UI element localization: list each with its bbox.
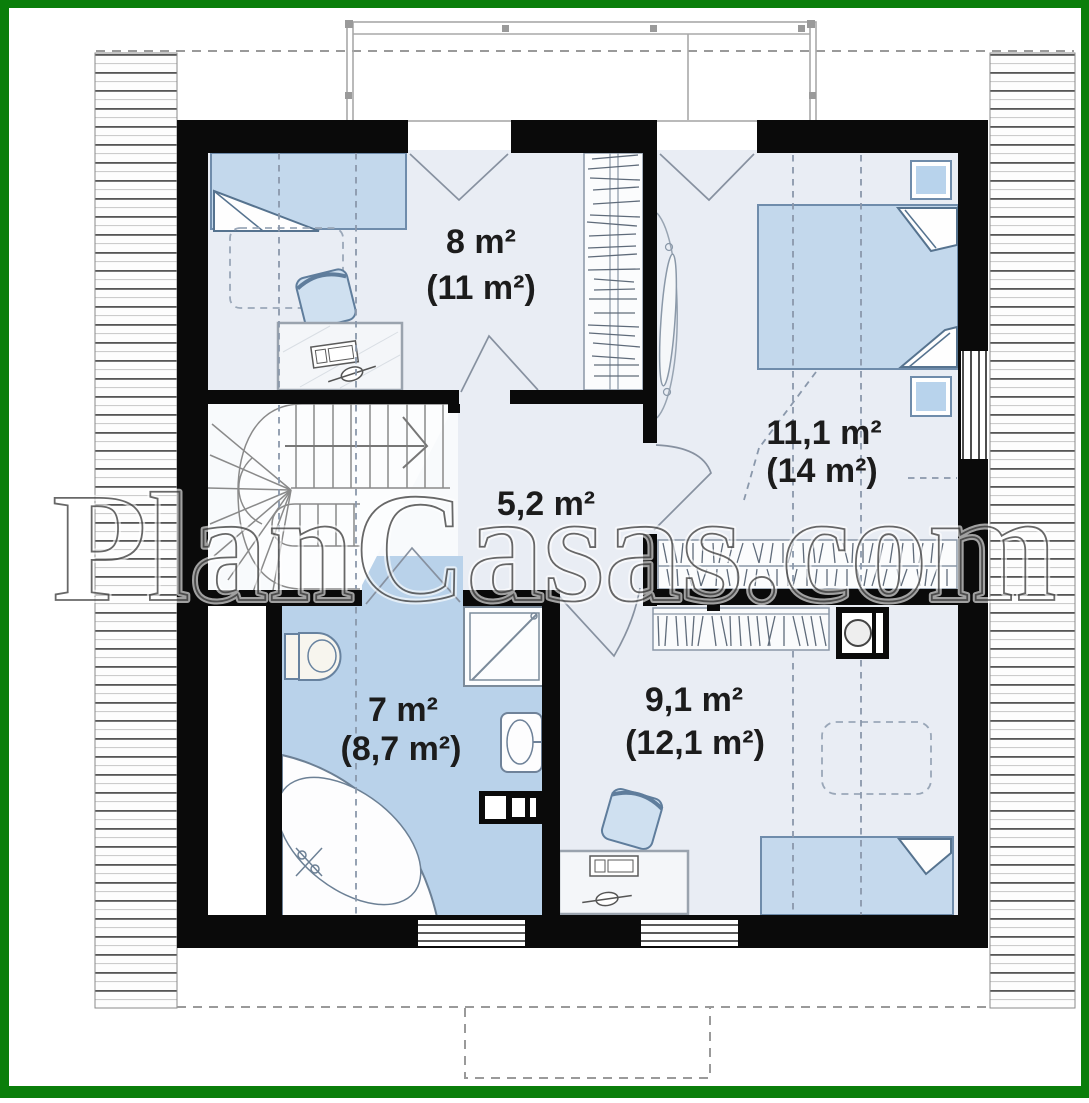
svg-text:(8,7 m²): (8,7 m²) bbox=[341, 730, 462, 768]
svg-text:8 m²: 8 m² bbox=[446, 223, 516, 261]
svg-text:9,1 m²: 9,1 m² bbox=[645, 681, 743, 719]
svg-text:11,1 m²: 11,1 m² bbox=[766, 414, 881, 452]
svg-text:7 m²: 7 m² bbox=[368, 691, 438, 729]
svg-text:(11 m²): (11 m²) bbox=[426, 269, 536, 307]
svg-text:(12,1 m²): (12,1 m²) bbox=[625, 724, 765, 762]
svg-text:PlanCasas.com: PlanCasas.com bbox=[52, 461, 1057, 634]
